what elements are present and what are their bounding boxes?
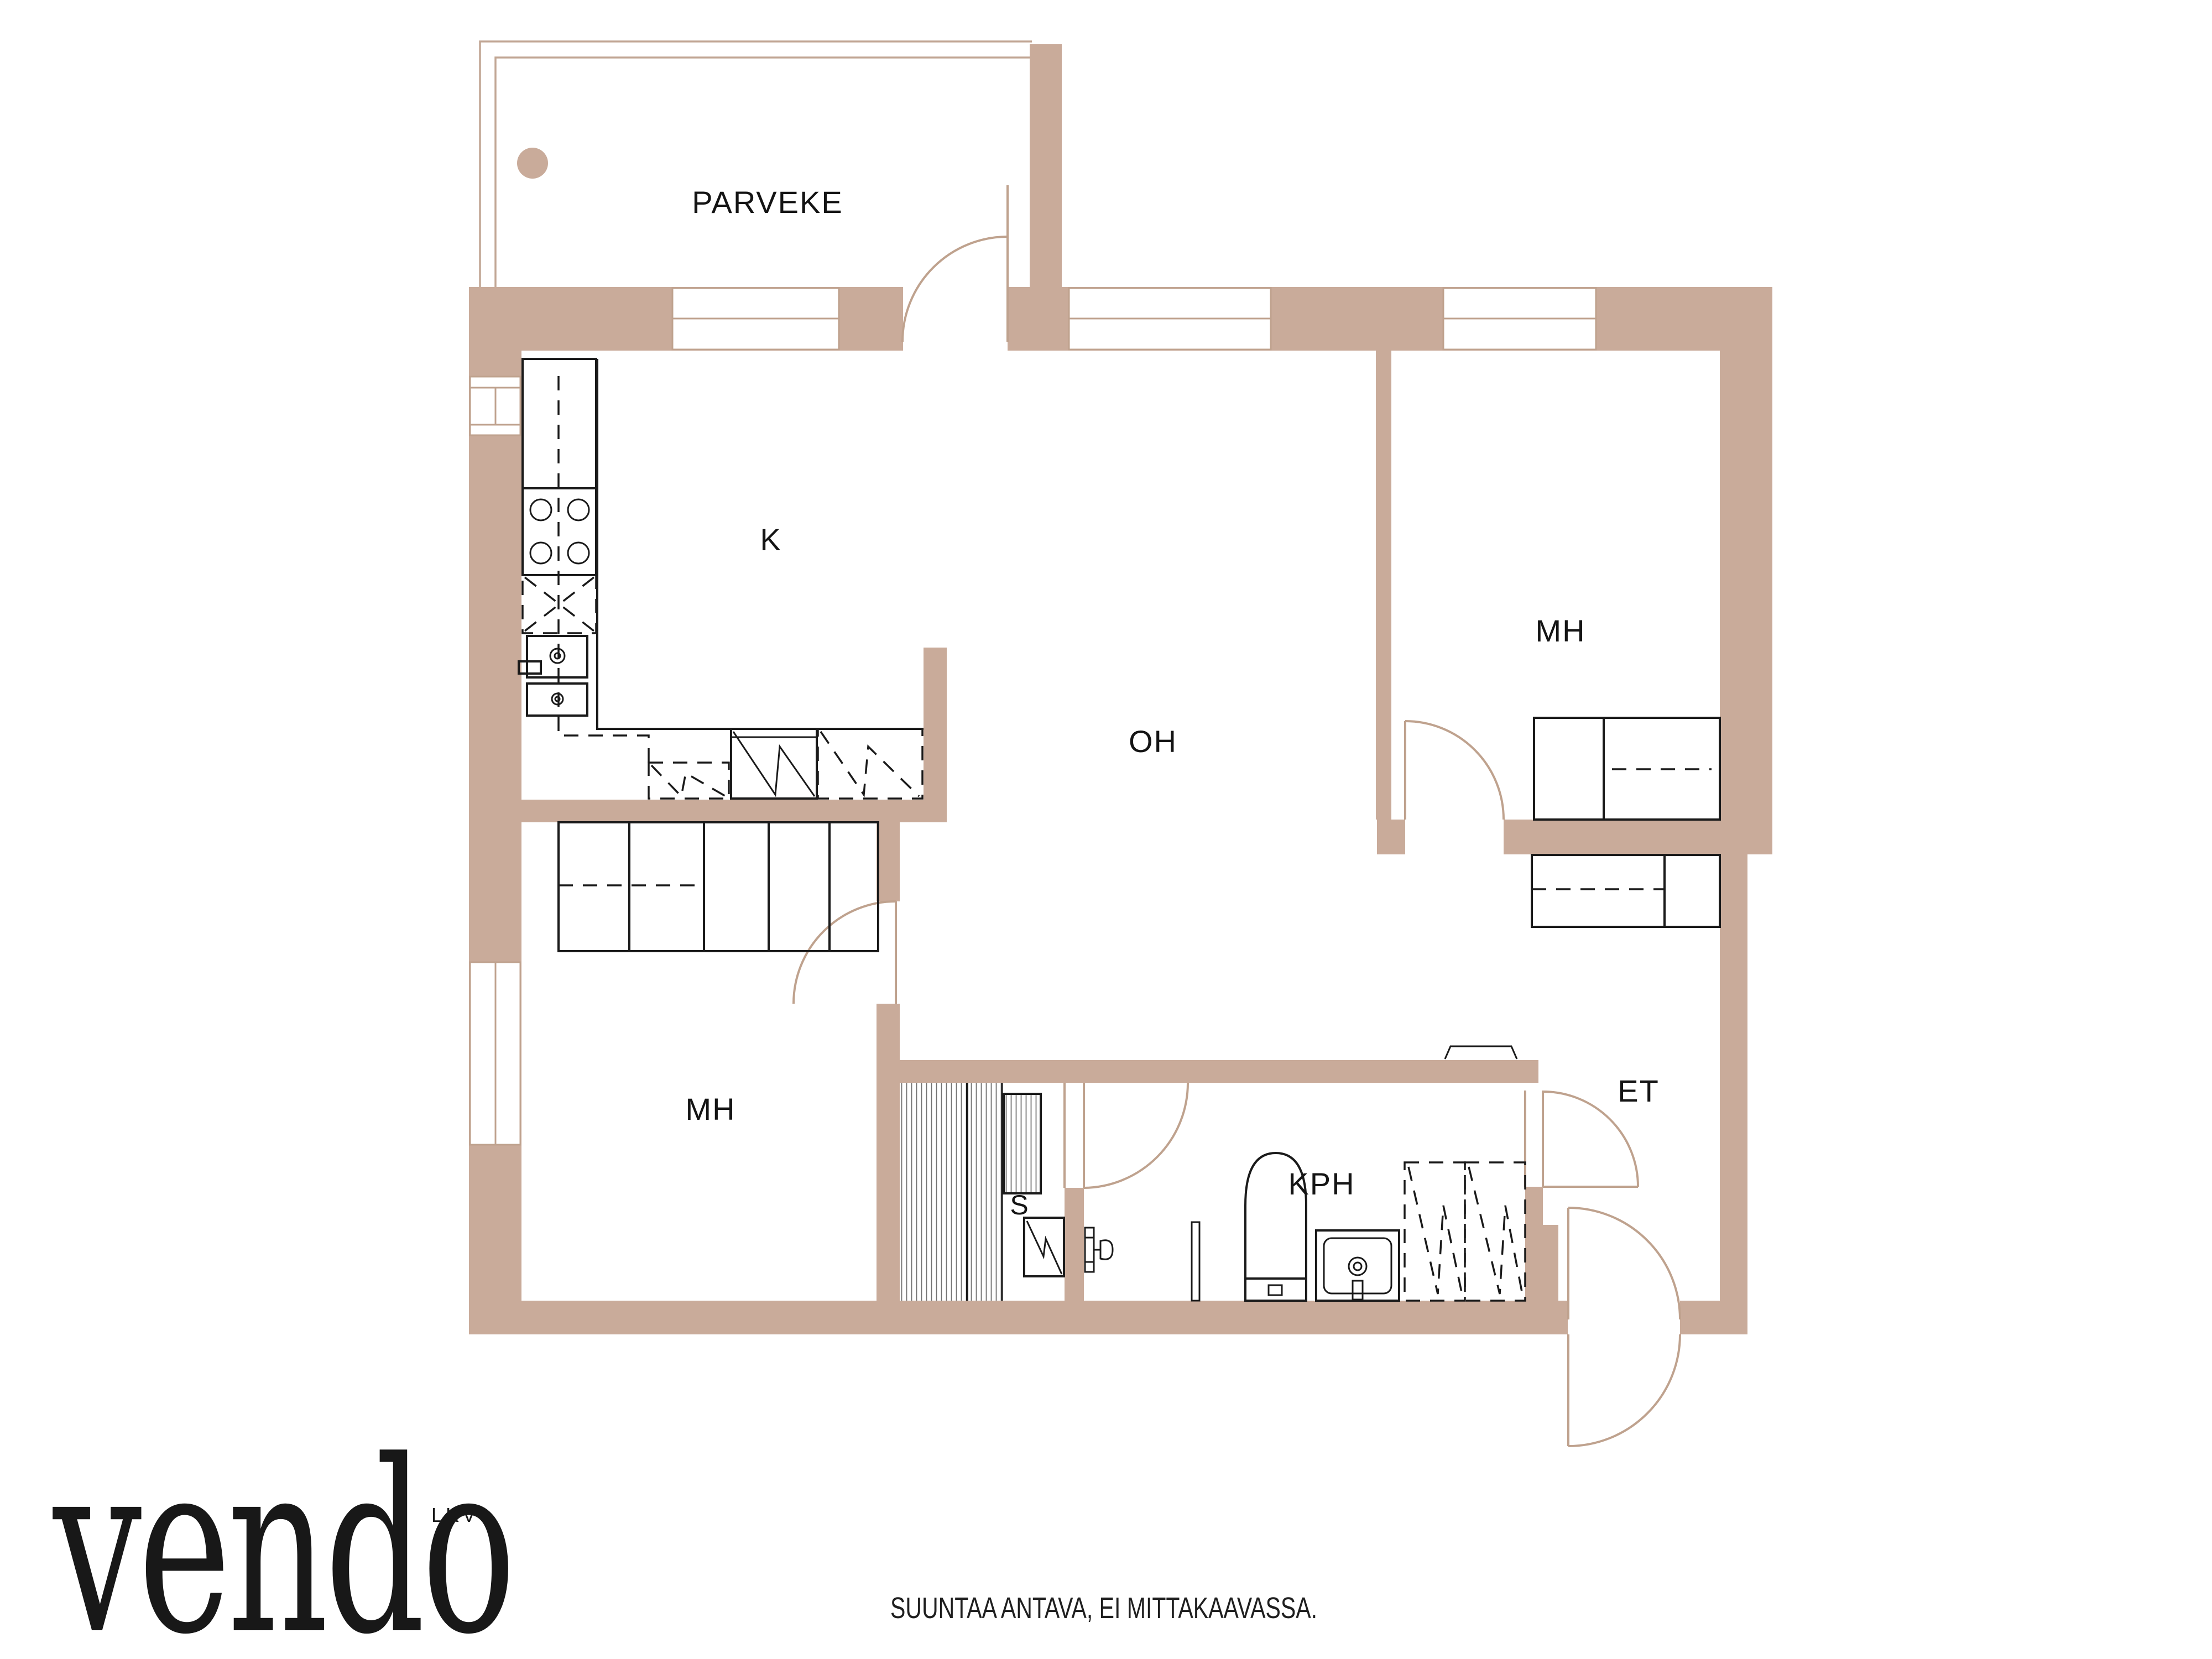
coat-rack-icon — [1445, 1046, 1517, 1059]
window-bedroomleft-left — [470, 962, 520, 1145]
freezer-reserved-icon — [818, 729, 922, 799]
vendo-logo-suffix: LKV — [431, 1504, 479, 1526]
bedroomleft-closets — [559, 822, 878, 951]
balcony-side-wall — [1030, 44, 1062, 314]
wall-bedroomleft-right-lower — [877, 1004, 900, 1301]
sink-bathroom-icon — [1316, 1230, 1399, 1301]
wall-bathroom-entry-upper — [1525, 1187, 1543, 1225]
wall-right-upper — [1720, 287, 1772, 854]
room-label-kitchen: K — [760, 522, 781, 557]
wall-living-bedroomright — [1376, 351, 1391, 820]
shower-screen-icon — [1192, 1222, 1199, 1301]
floorplan-page: PARVEKE K OH MH MH ET KPH S vendo LKV SU… — [0, 0, 2212, 1659]
balcony-door-opening — [903, 287, 1008, 351]
sauna-door-icon — [1084, 1083, 1188, 1188]
sauna-bench-lower-icon — [900, 1083, 1002, 1301]
window-kitchen-left — [470, 377, 520, 435]
balcony-drain-icon — [517, 148, 548, 179]
window-kitchen-top — [672, 288, 839, 349]
shower-icon — [1085, 1228, 1113, 1272]
interior-walls — [469, 351, 1772, 1305]
room-label-entry: ET — [1618, 1073, 1660, 1108]
nightstand-icon — [1534, 718, 1604, 820]
wall-sauna-right — [1065, 1188, 1084, 1301]
sauna-fixtures — [900, 1083, 1064, 1301]
branding: vendo LKV — [51, 1410, 513, 1659]
sauna-bench-upper-icon — [1004, 1094, 1041, 1193]
window-living-top — [1069, 288, 1271, 349]
kitchen-appliance-dashed-small — [649, 763, 729, 799]
window-bedroomright-top — [1443, 288, 1596, 349]
bathroom-door-opening — [1524, 1091, 1544, 1187]
wall-bedroomright-bottom-left — [1377, 820, 1405, 854]
vendo-logo: vendo — [51, 1410, 513, 1659]
kitchen-upper-cabinet-dashed — [559, 376, 649, 763]
room-label-bedroom-right: MH — [1535, 613, 1585, 648]
sauna-door-opening — [1063, 1083, 1085, 1188]
bedroomleft-door-icon — [794, 901, 896, 1004]
fridge-icon — [731, 729, 817, 799]
sauna-stove-icon — [1024, 1218, 1064, 1276]
entry-furniture — [1445, 855, 1720, 1059]
room-label-sauna: S — [1010, 1190, 1028, 1220]
room-label-bedroom-left: MH — [685, 1092, 735, 1126]
room-label-balcony: PARVEKE — [692, 185, 843, 220]
wall-kitchen-right-stub — [924, 648, 947, 822]
wall-bedroomleft-right-upper — [877, 822, 900, 901]
room-label-bathroom: KPH — [1288, 1166, 1355, 1201]
front-door-opening — [1568, 1301, 1680, 1334]
wall-living-bottom — [877, 1060, 1538, 1083]
bedroomright-door-icon — [1405, 721, 1504, 820]
wall-bedroomright-bottom-right — [1504, 820, 1772, 854]
sink-icon — [519, 636, 587, 716]
entry-wardrobe-icon — [1532, 855, 1720, 927]
wall-kitchen-bottom — [469, 800, 947, 822]
wall-bathroom-entry-lower — [1525, 1225, 1558, 1305]
room-label-living: OH — [1129, 724, 1177, 759]
washing-machine-reserved-icon — [1405, 1162, 1525, 1301]
wall-bottom — [469, 1301, 1747, 1334]
wall-right-lower — [1720, 854, 1747, 1334]
disclaimer-text: SUUNTAA ANTAVA, EI MITTAKAAVASSA. — [890, 1592, 1317, 1625]
kitchen-fixtures — [519, 359, 924, 799]
floorplan-image: PARVEKE K OH MH MH ET KPH S vendo LKV SU… — [0, 0, 2212, 1659]
bedroomright-furniture — [1534, 718, 1720, 820]
